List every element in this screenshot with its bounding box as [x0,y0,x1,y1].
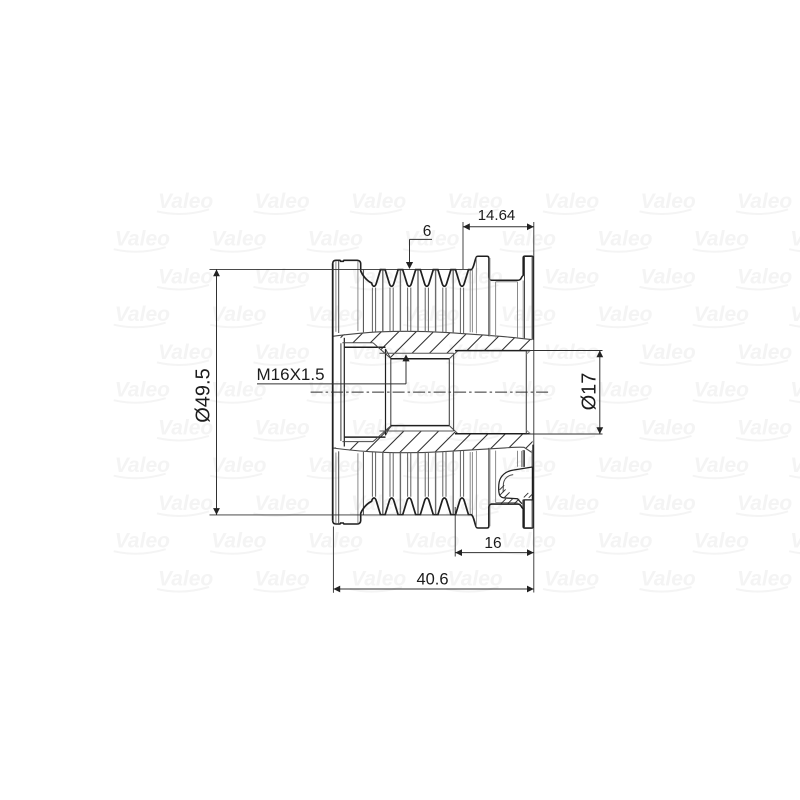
svg-text:14.64: 14.64 [478,207,516,224]
svg-text:Ø49.5: Ø49.5 [193,368,215,422]
svg-text:Valeo: Valeo [790,303,800,326]
svg-text:Valeo: Valeo [790,228,800,251]
svg-text:Valeo: Valeo [790,530,800,553]
svg-text:6: 6 [423,223,432,240]
svg-text:16: 16 [484,535,501,552]
svg-text:Ø17: Ø17 [578,373,600,411]
svg-text:40.6: 40.6 [416,571,448,589]
svg-text:M16X1.5: M16X1.5 [257,365,325,384]
svg-text:Valeo: Valeo [790,379,800,402]
svg-text:Valeo: Valeo [790,454,800,477]
